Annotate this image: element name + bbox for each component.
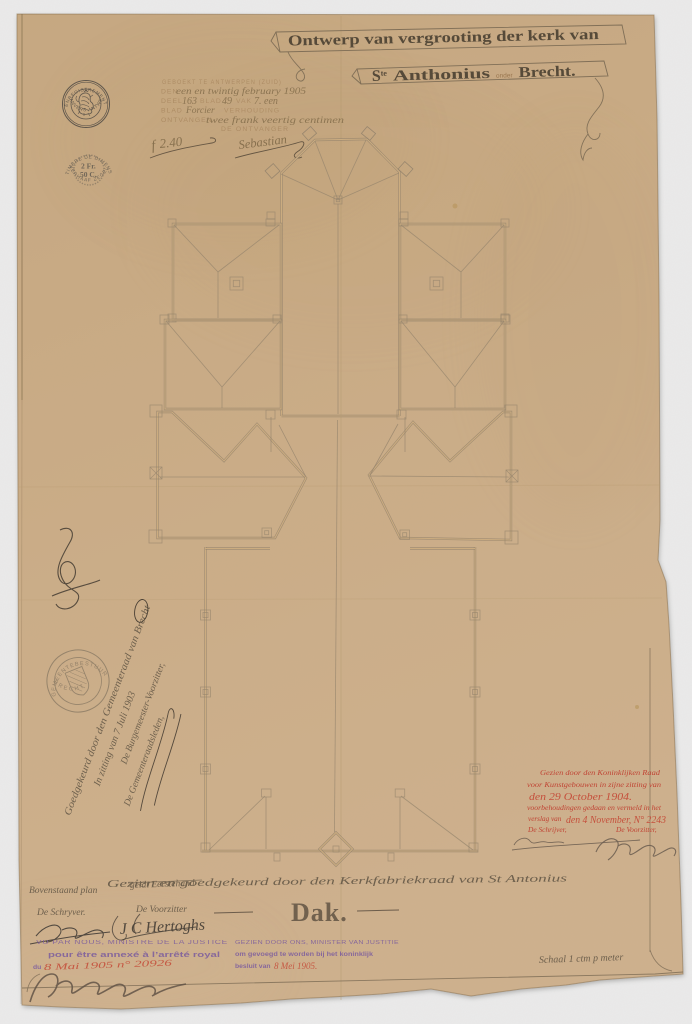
svg-text:DE ONTVANGER: DE ONTVANGER	[221, 126, 289, 133]
svg-text:8 Mei 1905.: 8 Mei 1905.	[274, 961, 317, 971]
svg-text:De Voorzitter: De Voorzitter	[135, 905, 187, 915]
svg-text:De Voorzitter,: De Voorzitter,	[615, 825, 657, 834]
svg-text:Gezien door den Koninklijken R: Gezien door den Koninklijken Raad	[540, 769, 660, 777]
svg-text:Dak.: Dak.	[291, 898, 348, 927]
svg-text:voorbehoudingen gedaan en verm: voorbehoudingen gedaan en vermeld in het	[527, 804, 662, 812]
svg-text:BLAD: BLAD	[200, 98, 222, 105]
svg-text:voor Kunstgebouwen in zijne zi: voor Kunstgebouwen in zijne zitting van	[527, 781, 661, 789]
svg-text:du: du	[33, 964, 41, 971]
svg-text:De Schrijver,: De Schrijver,	[527, 825, 567, 834]
svg-text:GEBOEKT TE ANTWERPEN (ZUID): GEBOEKT TE ANTWERPEN (ZUID)	[162, 79, 282, 86]
svg-text:den 29 October 1904.: den 29 October 1904.	[529, 791, 632, 803]
svg-text:Bovenstaand plan: Bovenstaand plan	[29, 886, 98, 896]
svg-text:VERHOUDING: VERHOUDING	[224, 108, 280, 115]
svg-text:om gevoegd te worden bij het k: om gevoegd te worden bij het koninklijk	[235, 951, 373, 958]
svg-text:VU PAR NOUS, MINISTRE DE LA JU: VU PAR NOUS, MINISTRE DE LA JUSTICE	[36, 940, 228, 946]
svg-text:7. een: 7. een	[254, 96, 278, 107]
svg-text:2.40: 2.40	[159, 134, 184, 151]
svg-text:twee frank veertig centimen: twee frank veertig centimen	[206, 115, 344, 126]
svg-text:De Schryver.: De Schryver.	[36, 908, 86, 918]
svg-text:GEZIEN DOOR ONS, MINISTER VAN: GEZIEN DOOR ONS, MINISTER VAN JUSTITIE	[235, 940, 399, 946]
svg-text:verslag van: verslag van	[528, 815, 562, 823]
svg-text:BLAD: BLAD	[161, 108, 183, 115]
svg-text:pour être annexé à l’arrêté ro: pour être annexé à l’arrêté royal	[48, 950, 220, 959]
svg-text:49: 49	[222, 96, 232, 107]
svg-text:besluit van: besluit van	[235, 963, 271, 970]
svg-text:DEEL: DEEL	[161, 98, 183, 105]
svg-text:50 C.: 50 C.	[80, 170, 97, 179]
svg-text:ONTVANGEN: ONTVANGEN	[161, 117, 213, 124]
svg-text:Forcier: Forcier	[185, 106, 215, 116]
svg-text:VAK: VAK	[236, 98, 252, 105]
